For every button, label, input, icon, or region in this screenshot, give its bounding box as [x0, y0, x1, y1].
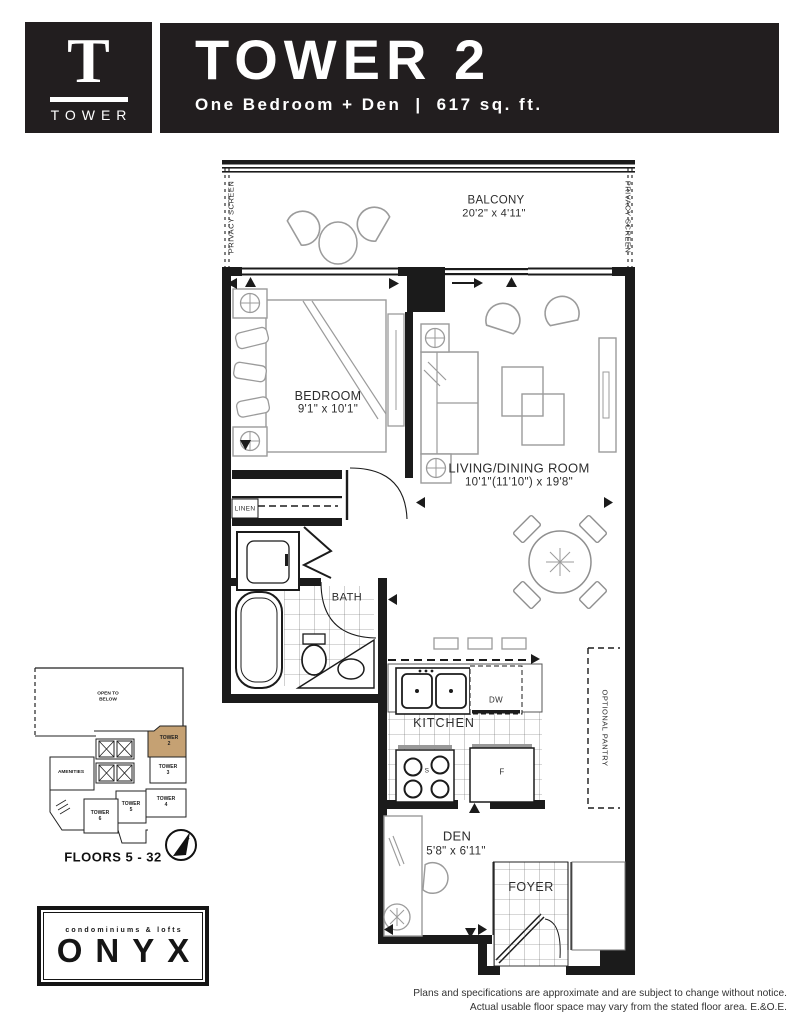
keyplan-tower-4: TOWER4	[157, 796, 176, 808]
foyer-closet	[568, 862, 625, 950]
disclaimer: Plans and specifications are approximate…	[300, 987, 787, 1014]
floors-range-label: FLOORS 5 - 32	[64, 850, 162, 865]
brand-name: ONYX	[44, 936, 203, 966]
toilet	[302, 634, 326, 675]
kitchen-label: KITCHEN	[413, 716, 475, 730]
wardrobe	[388, 314, 404, 426]
onyx-logo: condominiums & lofts ONYX	[37, 906, 209, 986]
balcony-label: BALCONY	[467, 194, 524, 207]
bathtub	[236, 592, 282, 688]
den-desk	[384, 816, 449, 936]
linen-label: LINEN	[235, 505, 256, 512]
kitchen-counter	[388, 664, 542, 714]
floorplan-drawing	[0, 0, 791, 1024]
keyplan-tower-2: TOWER2	[160, 735, 179, 747]
den-label: DEN	[443, 830, 471, 845]
armchairs	[484, 293, 581, 335]
amenities-label: AMENITIES	[58, 770, 84, 776]
foyer-label: FOYER	[508, 880, 554, 894]
dishwasher-label: DW	[489, 695, 503, 704]
bar-stools	[434, 638, 526, 649]
optional-pantry-label: OPTIONAL PANTRY	[600, 690, 609, 767]
fridge-label: F	[499, 767, 504, 776]
living-dining-dims: 10'1"(11'10") x 19'8"	[465, 476, 573, 489]
coffee-tables	[502, 367, 564, 445]
den-dims: 5'8" x 6'11"	[426, 845, 485, 858]
keyplan-tower-3: TOWER3	[159, 764, 178, 776]
stove-label: S	[425, 767, 430, 774]
privacy-screen-left-label: PRIVACY SCREEN	[228, 181, 237, 254]
bedroom-label: BEDROOM	[295, 389, 362, 403]
bedroom-dims: 9'1" x 10'1"	[298, 403, 358, 416]
dining-table	[513, 515, 607, 609]
tv-console	[599, 338, 616, 452]
open-to-below-label: OPEN TO BELOW	[88, 691, 128, 702]
balcony-dims: 20'2" x 4'11"	[462, 208, 525, 221]
floorplan-sheet: T TOWER TOWER 2 One Bedroom + Den|617 sq…	[0, 0, 791, 1024]
keyplan-tower-6: TOWER6	[91, 810, 110, 822]
living-dining-label: LIVING/DINING ROOM	[448, 462, 589, 477]
balcony-structure	[222, 160, 635, 267]
disclaimer-line2: Actual usable floor space may vary from …	[300, 1001, 787, 1015]
privacy-screen-right-label: PRIVACY SCREEN	[623, 181, 632, 254]
washer	[237, 532, 299, 590]
bath-label: BATH	[332, 592, 363, 605]
sofa	[421, 324, 478, 483]
disclaimer-line1: Plans and specifications are approximate…	[300, 987, 787, 1001]
balcony-furniture	[286, 201, 391, 264]
keyplan-tower-5: TOWER5	[122, 801, 141, 813]
